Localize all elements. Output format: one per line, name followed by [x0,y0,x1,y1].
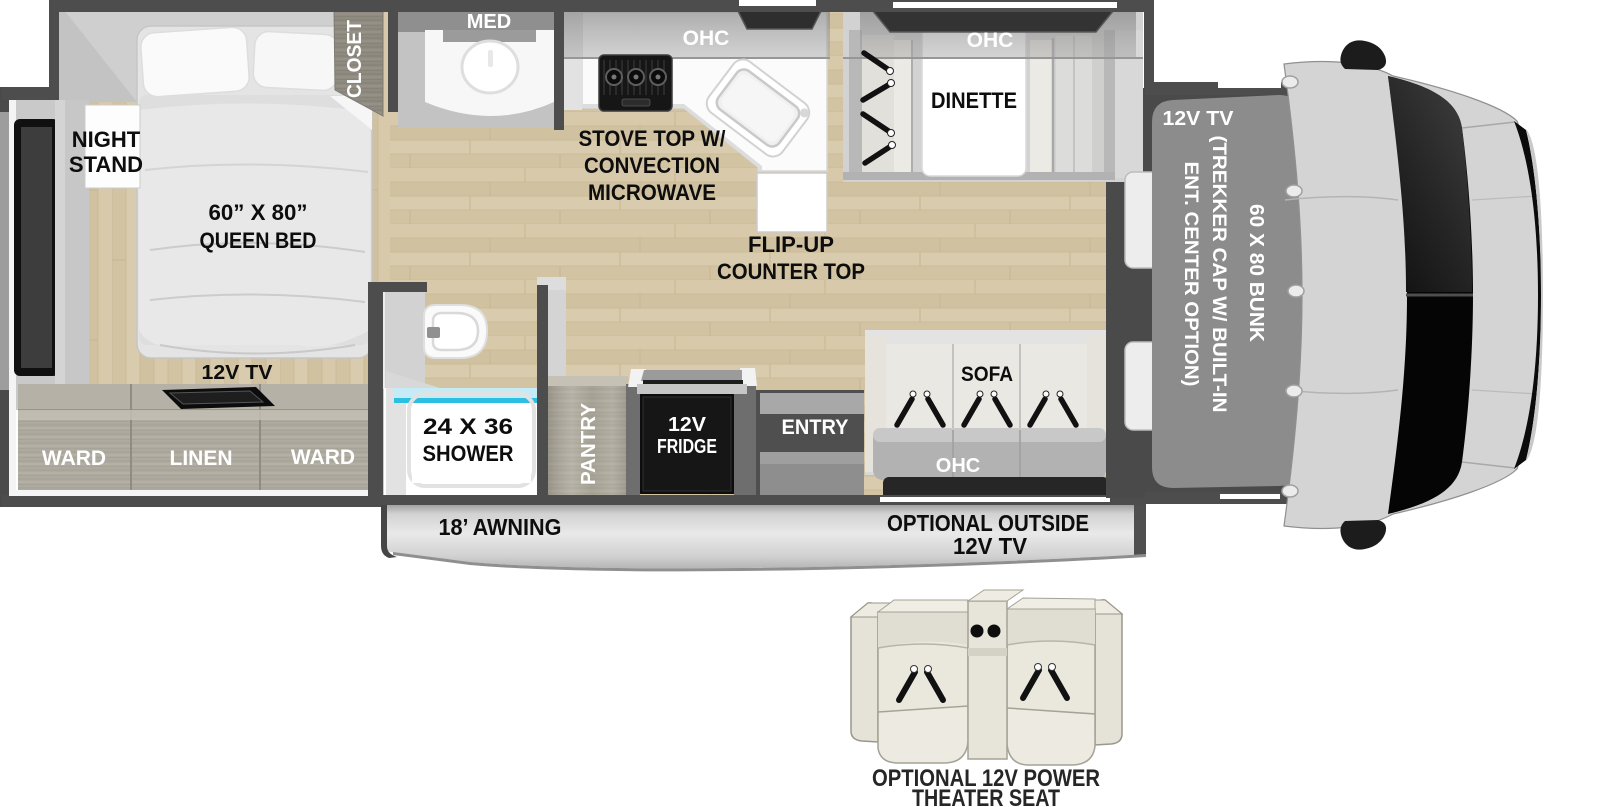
svg-text:MED: MED [467,11,511,33]
svg-text:24 X 36: 24 X 36 [423,414,513,439]
svg-text:(TREKKER CAP W/ BUILT-IN: (TREKKER CAP W/ BUILT-IN [1208,136,1229,413]
svg-text:18’ AWNING: 18’ AWNING [439,514,562,540]
svg-text:QUEEN BED: QUEEN BED [200,228,317,253]
svg-text:PANTRY: PANTRY [578,402,600,485]
svg-text:WARD: WARD [291,446,355,469]
svg-text:12V TV: 12V TV [953,533,1028,559]
svg-text:MICROWAVE: MICROWAVE [588,180,716,205]
svg-text:LINEN: LINEN [170,447,233,470]
svg-text:60” X 80”: 60” X 80” [209,200,308,225]
svg-text:12V TV: 12V TV [1163,108,1235,130]
svg-text:STAND: STAND [69,152,143,177]
svg-text:12V TV: 12V TV [202,362,274,384]
svg-text:WARD: WARD [42,447,106,470]
svg-text:ENTRY: ENTRY [782,416,849,439]
svg-text:OHC: OHC [967,29,1014,52]
svg-text:NIGHT: NIGHT [72,127,141,152]
svg-text:CLOSET: CLOSET [344,20,366,98]
svg-text:THEATER SEAT: THEATER SEAT [912,785,1060,807]
svg-text:CONVECTION: CONVECTION [584,153,720,178]
svg-text:STOVE TOP W/: STOVE TOP W/ [579,126,726,151]
svg-text:OHC: OHC [936,455,980,477]
svg-text:COUNTER TOP: COUNTER TOP [717,259,865,284]
svg-text:OHC: OHC [683,27,730,50]
svg-text:SOFA: SOFA [961,363,1013,386]
svg-text:SHOWER: SHOWER [423,441,514,466]
svg-text:60 X 80 BUNK: 60 X 80 BUNK [1245,204,1267,343]
svg-text:ENT. CENTER OPTION): ENT. CENTER OPTION) [1180,162,1201,387]
svg-text:FRIDGE: FRIDGE [657,436,717,458]
svg-text:DINETTE: DINETTE [931,88,1017,113]
svg-text:12V: 12V [668,414,707,436]
svg-text:FLIP-UP: FLIP-UP [748,232,834,257]
